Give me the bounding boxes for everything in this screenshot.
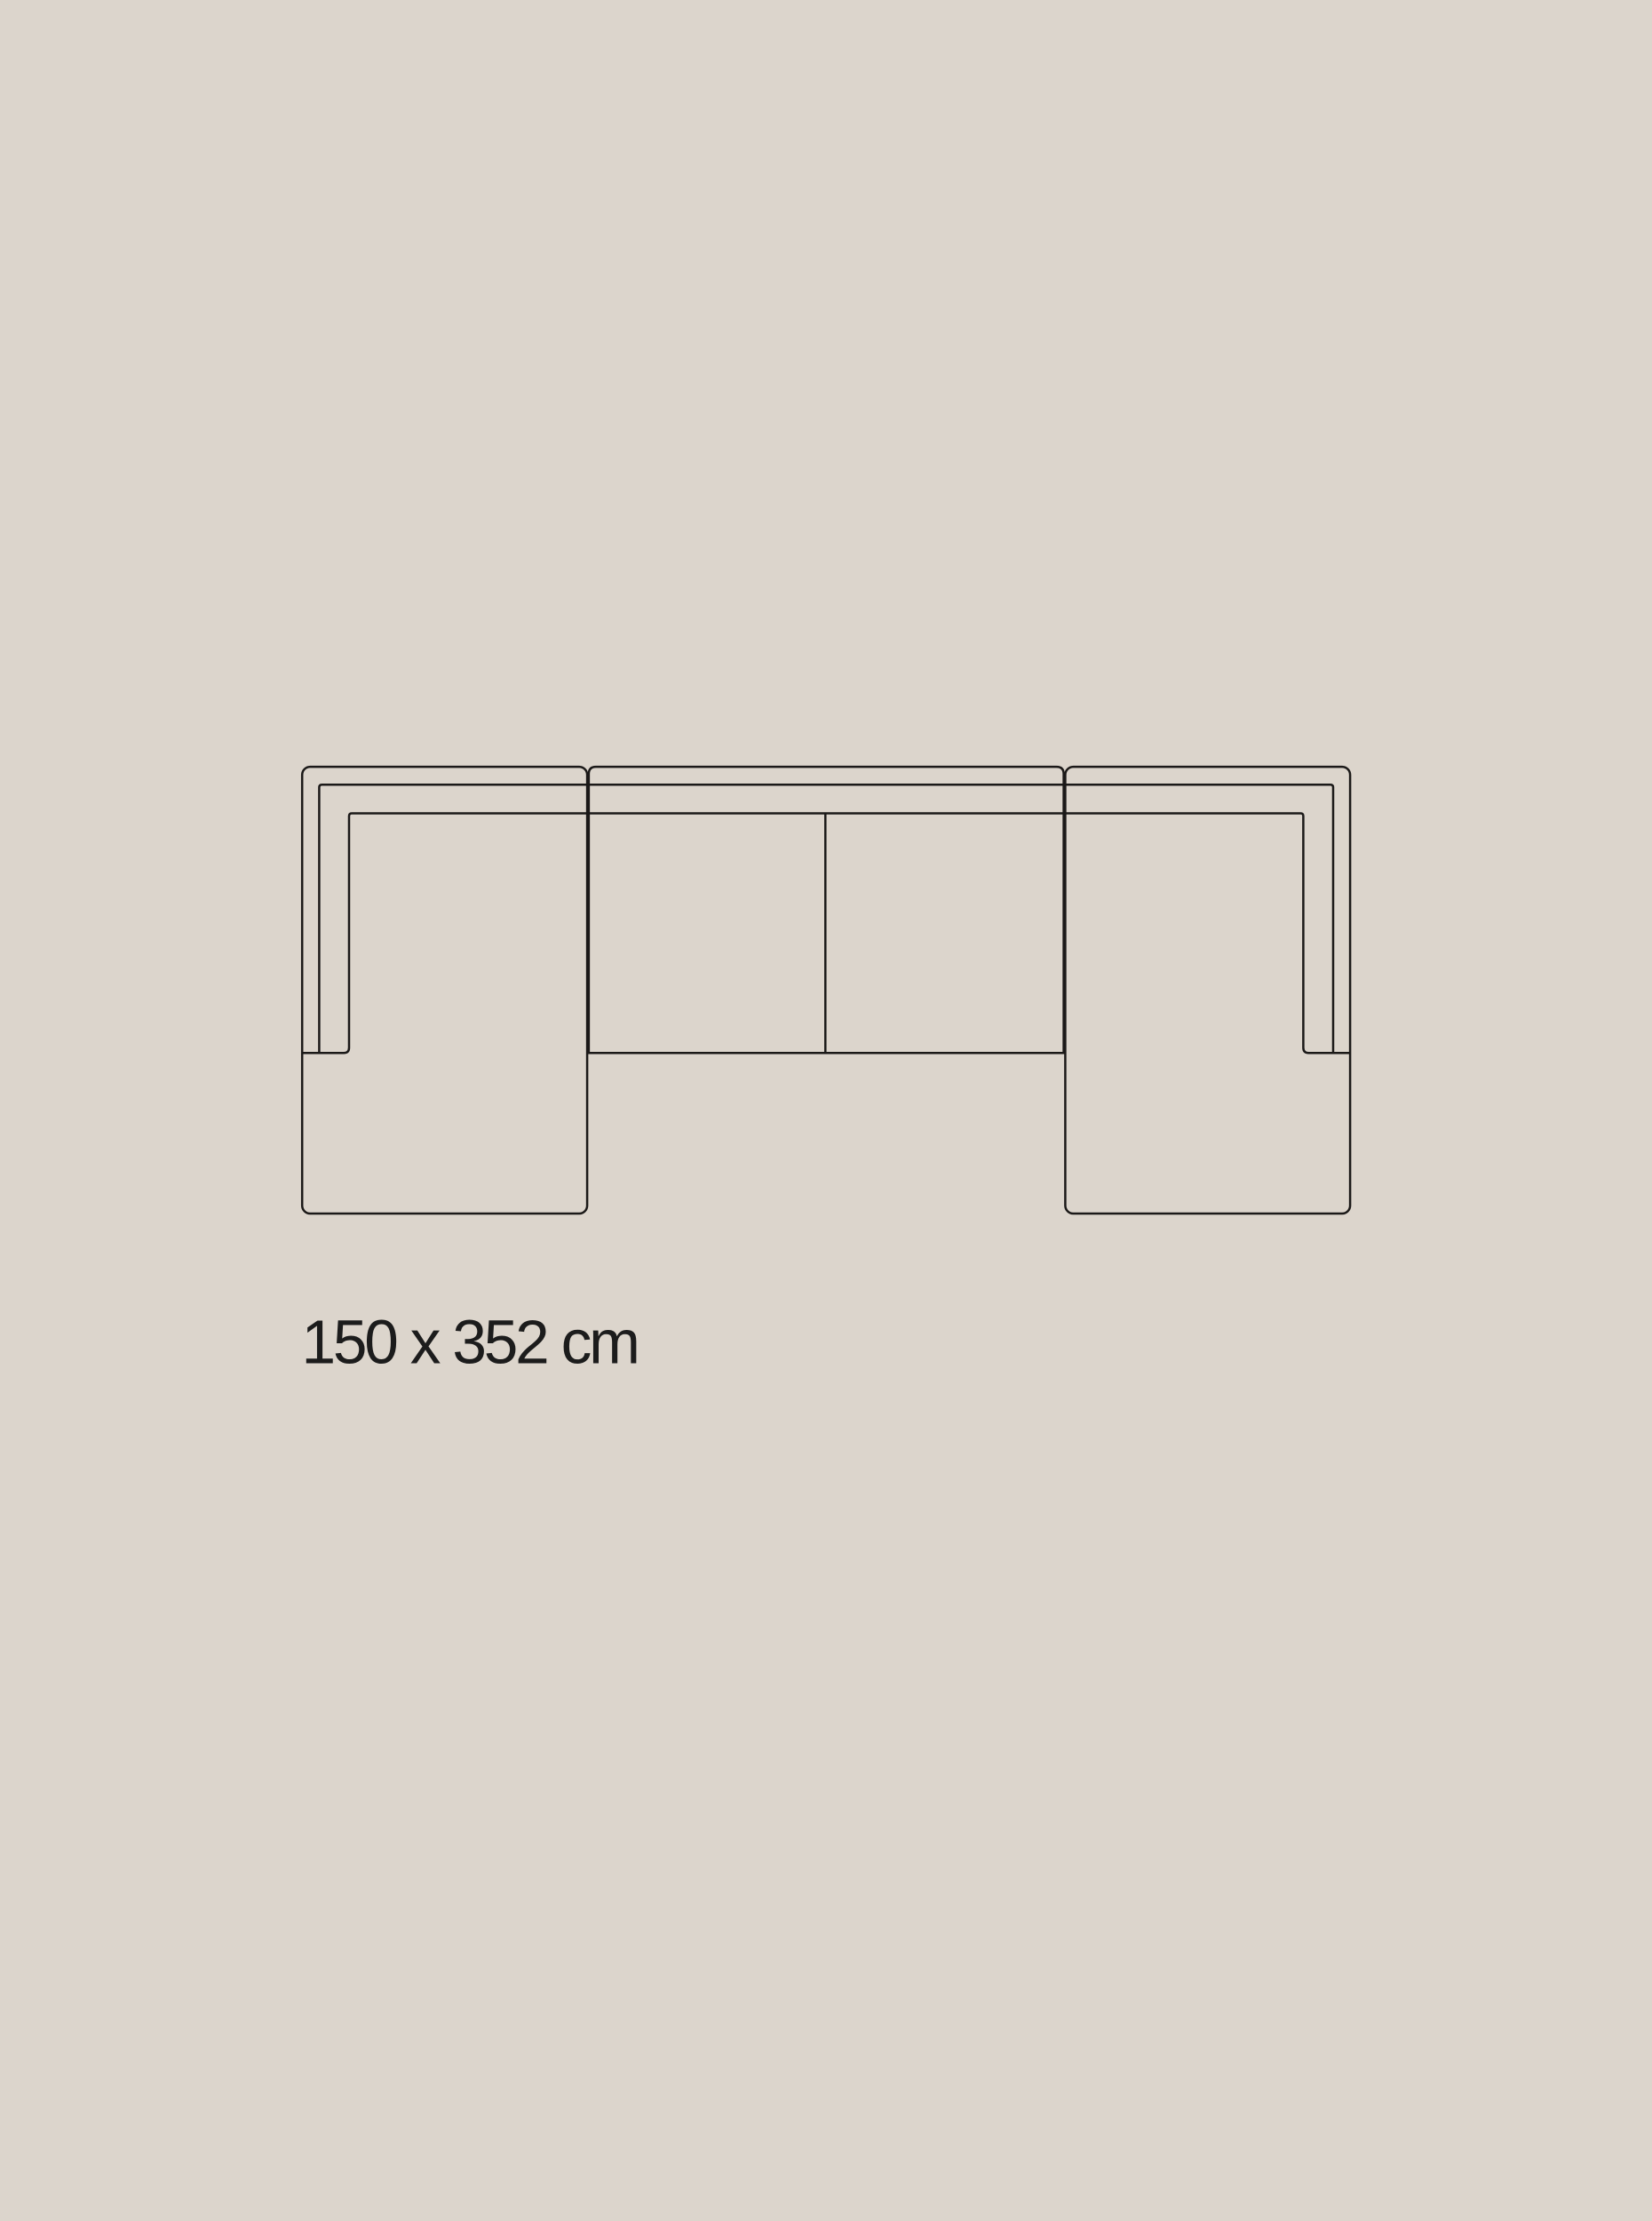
- svg-text:150 x 352 cm: 150 x 352 cm: [302, 1308, 638, 1377]
